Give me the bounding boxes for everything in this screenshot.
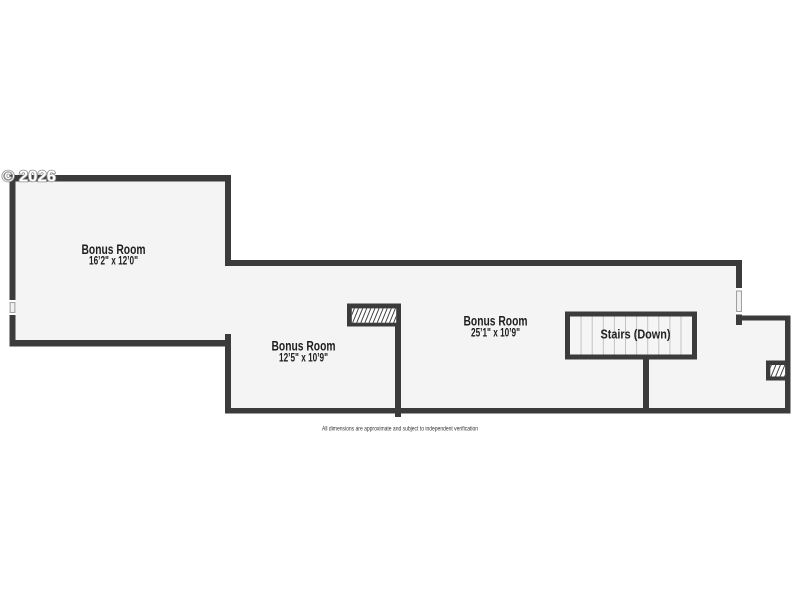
svg-text:Stairs (Down): Stairs (Down)	[601, 328, 671, 342]
svg-text:Bonus Room: Bonus Room	[464, 314, 528, 329]
svg-text:16’2" x 12’0": 16’2" x 12’0"	[89, 256, 138, 268]
svg-text:Bonus Room: Bonus Room	[272, 339, 336, 354]
svg-text:© 2026: © 2026	[2, 169, 56, 186]
svg-text:12’5" x 10’9": 12’5" x 10’9"	[279, 353, 328, 365]
svg-text:25’1" x 10’9": 25’1" x 10’9"	[471, 328, 520, 340]
svg-text:All dimensions are approximate: All dimensions are approximate and subje…	[322, 427, 478, 433]
